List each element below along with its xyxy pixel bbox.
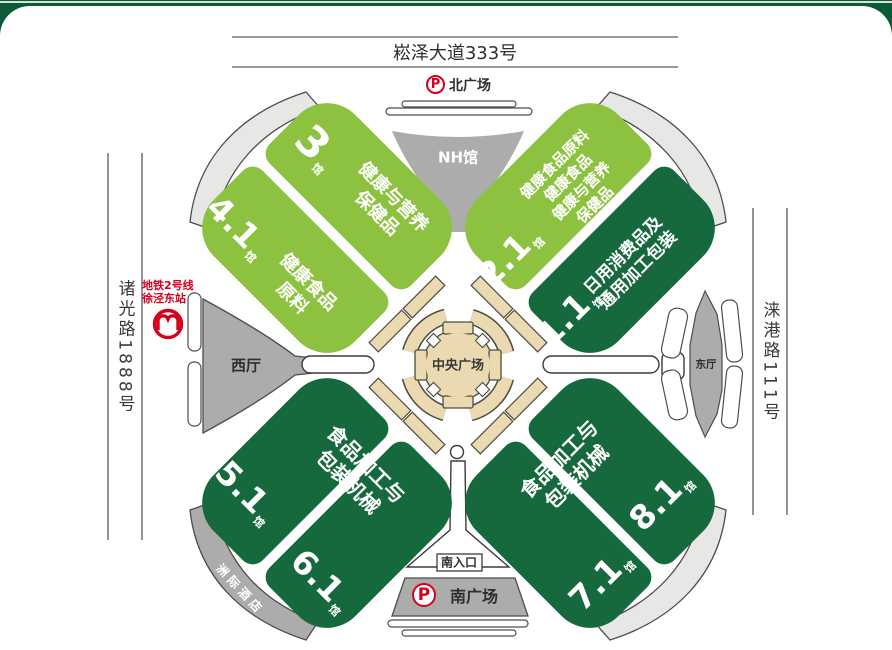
south-plaza-label: 南广场 bbox=[450, 583, 498, 607]
east-hall-label: 东厅 bbox=[696, 357, 717, 372]
east-road-label: 涞港路111号 bbox=[758, 301, 783, 422]
parking-icon: P bbox=[426, 75, 445, 94]
venue-map: 3馆 健康与营养保健品 4.1馆 健康食品原料 2.1馆 健康食品原料健康食品 … bbox=[0, 0, 892, 650]
shanghai-metro-icon bbox=[150, 306, 186, 342]
west-road-label: 诸光路1888号 bbox=[113, 279, 138, 414]
metro-station-label: 地铁2号线 徐泾东站 bbox=[142, 279, 194, 305]
west-hall-label: 西厅 bbox=[231, 355, 261, 376]
nh-hall-label: NH馆 bbox=[438, 147, 478, 168]
parking-icon: P bbox=[412, 583, 436, 607]
south-plaza-bars bbox=[388, 620, 528, 636]
north-plaza-label: 北广场 bbox=[449, 75, 491, 95]
west-hall-leaves bbox=[188, 293, 201, 426]
north-road-label: 崧泽大道333号 bbox=[393, 39, 517, 65]
north-plaza-bars bbox=[386, 101, 532, 115]
central-plaza-label: 中央广场 bbox=[432, 355, 484, 374]
south-entrance-label: 南入口 bbox=[441, 554, 477, 571]
south-stem-circle bbox=[451, 446, 464, 459]
